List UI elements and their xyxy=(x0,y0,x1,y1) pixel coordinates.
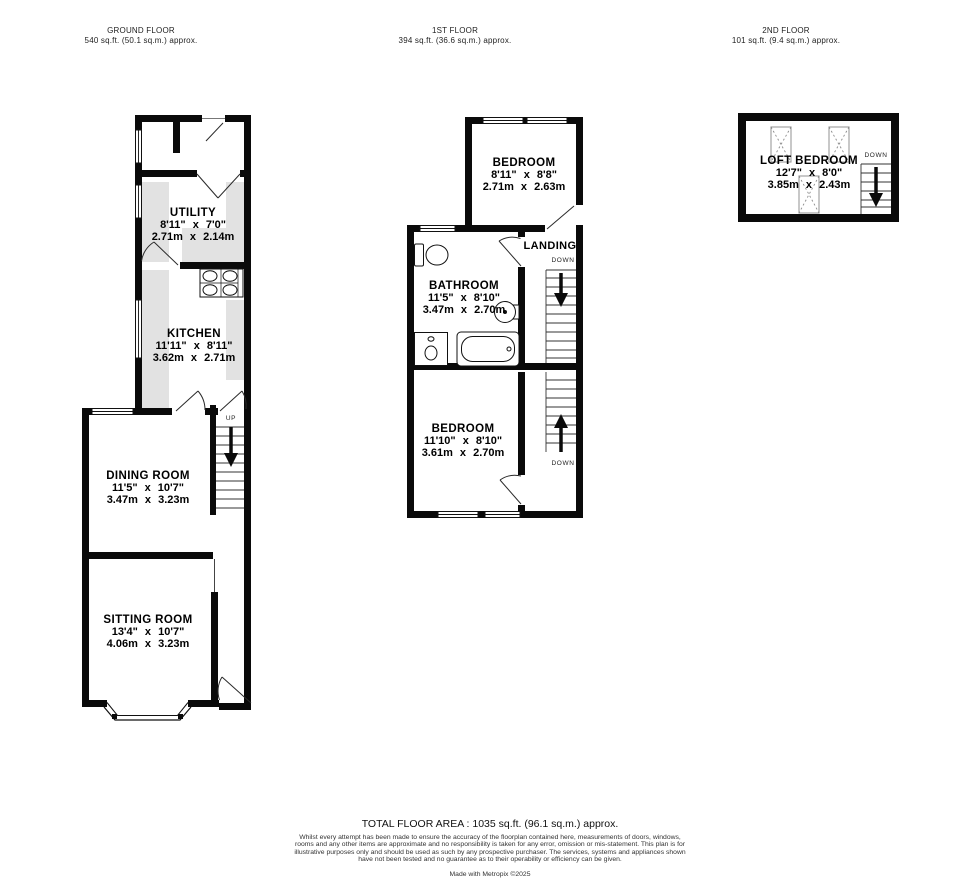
room-label-dining-room: DINING ROOM 11'5" x 10'7" 3.47m x 3.23m xyxy=(106,470,190,506)
room-size-metric: 2.71m x 2.63m xyxy=(483,181,566,193)
disclaimer-text: Whilst every attempt has been made to en… xyxy=(291,834,689,863)
total-floor-area: TOTAL FLOOR AREA : 1035 sq.ft. (96.1 sq.… xyxy=(362,818,619,830)
room-size-metric: 3.61m x 2.70m xyxy=(422,447,505,459)
ground-windows xyxy=(92,130,142,415)
room-size-metric: 3.62m x 2.71m xyxy=(153,352,236,364)
room-label-kitchen: KITCHEN 11'11" x 8'11" 3.62m x 2.71m xyxy=(153,328,236,364)
floor-area: 394 sq.ft. (36.6 sq.m.) approx. xyxy=(399,36,512,46)
floorplan-page: GROUND FLOOR 540 sq.ft. (50.1 sq.m.) app… xyxy=(0,0,980,882)
floor-name: 2ND FLOOR xyxy=(732,26,840,36)
room-label-loft-bedroom: LOFT BEDROOM 12'7" x 8'0" 3.85m x 2.43m xyxy=(760,155,858,191)
room-label-bathroom: BATHROOM 11'5" x 8'10" 3.47m x 2.70m xyxy=(423,280,506,316)
bay-window xyxy=(100,700,195,720)
floor-area: 540 sq.ft. (50.1 sq.m.) approx. xyxy=(85,36,198,46)
room-size-imperial: 11'10" x 8'10" xyxy=(422,435,505,447)
room-size-imperial: 13'4" x 10'7" xyxy=(103,626,192,638)
toilet-icon xyxy=(415,244,449,266)
ground-window-midlines xyxy=(92,130,139,412)
stairs-up-label: UP xyxy=(226,415,236,422)
ground-stairs xyxy=(216,427,244,508)
room-size-metric: 3.47m x 3.23m xyxy=(106,494,190,506)
room-size-imperial: 8'11" x 7'0" xyxy=(152,219,235,231)
room-name: UTILITY xyxy=(152,207,235,219)
second-stairs xyxy=(861,164,891,214)
room-size-imperial: 8'11" x 8'8" xyxy=(483,169,566,181)
floor-name: 1ST FLOOR xyxy=(399,26,512,36)
stairs-down-label: DOWN xyxy=(552,460,575,467)
room-size-metric: 2.71m x 2.14m xyxy=(152,231,235,243)
room-size-metric: 3.47m x 2.70m xyxy=(423,304,506,316)
room-label-utility: UTILITY 8'11" x 7'0" 2.71m x 2.14m xyxy=(152,207,235,243)
stairs-up-arrow xyxy=(554,414,568,452)
floor-name: GROUND FLOOR xyxy=(85,26,198,36)
stairs-down-label: DOWN xyxy=(865,152,888,159)
floor-area: 101 sq.ft. (9.4 sq.m.) approx. xyxy=(732,36,840,46)
room-name: SITTING ROOM xyxy=(103,614,192,626)
bathtub-icon xyxy=(457,332,519,366)
room-size-metric: 3.85m x 2.43m xyxy=(760,179,858,191)
stairs-direction-arrow xyxy=(224,427,238,467)
second-floor-header: 2ND FLOOR 101 sq.ft. (9.4 sq.m.) approx. xyxy=(732,26,840,45)
sink-icon xyxy=(415,333,448,366)
room-name: BATHROOM xyxy=(423,280,506,292)
ground-floor-header: GROUND FLOOR 540 sq.ft. (50.1 sq.m.) app… xyxy=(85,26,198,45)
first-floor-header: 1ST FLOOR 394 sq.ft. (36.6 sq.m.) approx… xyxy=(399,26,512,45)
room-label-bedroom-1: BEDROOM 8'11" x 8'8" 2.71m x 2.63m xyxy=(483,157,566,193)
room-size-imperial: 11'5" x 10'7" xyxy=(106,482,190,494)
room-label-landing: LANDING xyxy=(524,240,577,252)
credit-text: Made with Metropix ©2025 xyxy=(450,871,531,878)
stairs-down-label: DOWN xyxy=(552,257,575,264)
room-name: BEDROOM xyxy=(483,157,566,169)
first-stairs xyxy=(546,270,576,452)
room-name: BEDROOM xyxy=(422,423,505,435)
stove-icon xyxy=(200,269,243,297)
room-label-sitting-room: SITTING ROOM 13'4" x 10'7" 4.06m x 3.23m xyxy=(103,614,192,650)
room-size-metric: 4.06m x 3.23m xyxy=(103,638,192,650)
room-name: LOFT BEDROOM xyxy=(760,155,858,167)
room-size-imperial: 11'5" x 8'10" xyxy=(423,292,506,304)
room-label-bedroom-2: BEDROOM 11'10" x 8'10" 3.61m x 2.70m xyxy=(422,423,505,459)
room-size-imperial: 12'7" x 8'0" xyxy=(760,167,858,179)
room-size-imperial: 11'11" x 8'11" xyxy=(153,340,236,352)
room-name: KITCHEN xyxy=(153,328,236,340)
room-name: DINING ROOM xyxy=(106,470,190,482)
